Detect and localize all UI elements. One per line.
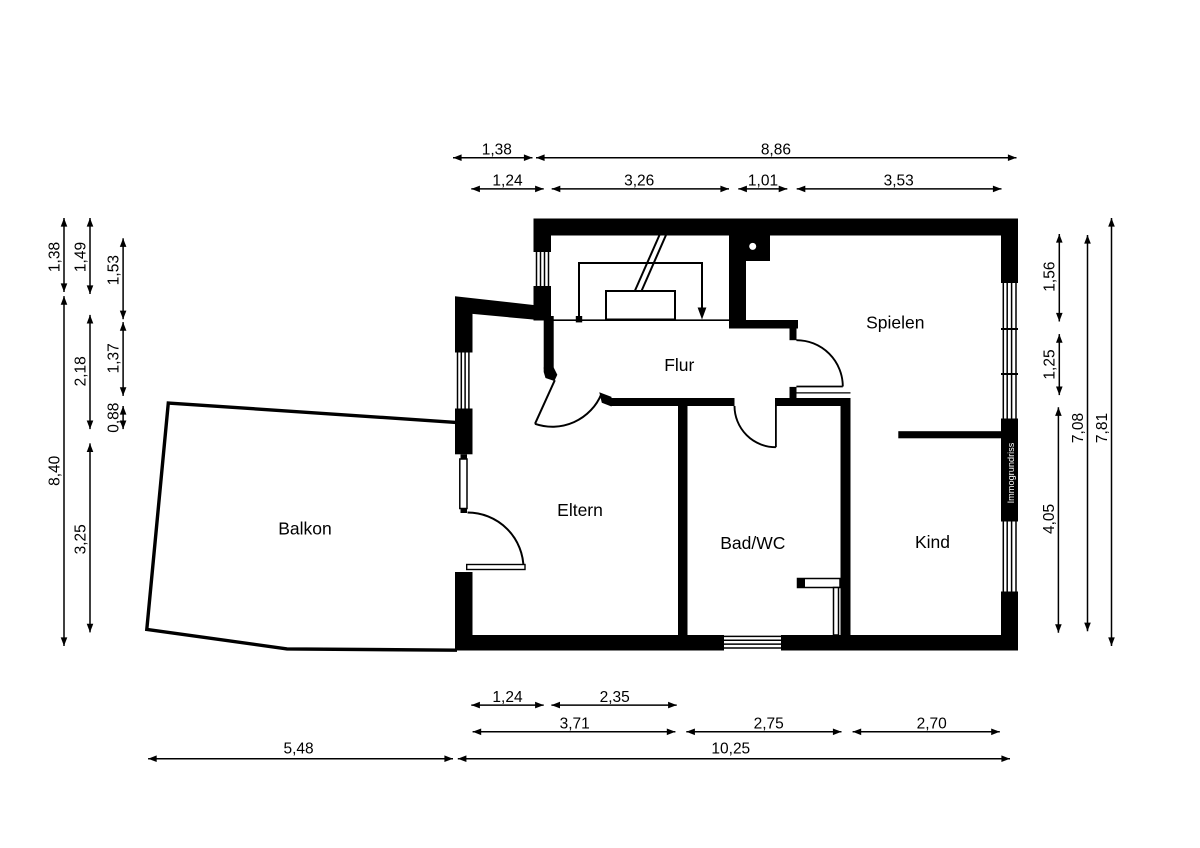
svg-text:1,24: 1,24 (492, 689, 523, 706)
svg-text:1,49: 1,49 (72, 242, 89, 272)
svg-text:8,86: 8,86 (761, 142, 791, 159)
svg-text:4,05: 4,05 (1041, 504, 1058, 534)
svg-text:2,75: 2,75 (754, 716, 784, 733)
svg-text:Flur: Flur (664, 355, 694, 375)
svg-text:1,24: 1,24 (492, 173, 523, 190)
svg-text:Balkon: Balkon (278, 519, 332, 539)
svg-text:2,70: 2,70 (917, 716, 948, 733)
svg-text:1,01: 1,01 (748, 173, 778, 190)
svg-text:3,71: 3,71 (560, 716, 590, 733)
svg-text:7,08: 7,08 (1070, 413, 1087, 443)
svg-text:Eltern: Eltern (557, 500, 603, 520)
svg-text:0,88: 0,88 (106, 403, 123, 433)
svg-text:1,38: 1,38 (482, 142, 512, 159)
svg-text:Immogrundriss: Immogrundriss (1006, 442, 1016, 503)
svg-text:3,53: 3,53 (884, 173, 914, 190)
svg-text:1,37: 1,37 (106, 343, 123, 373)
svg-text:3,26: 3,26 (624, 173, 654, 190)
svg-text:Kind: Kind (915, 532, 950, 552)
svg-text:5,48: 5,48 (284, 741, 314, 758)
svg-text:Spielen: Spielen (866, 312, 924, 332)
svg-text:1,25: 1,25 (1042, 349, 1059, 379)
svg-text:8,40: 8,40 (46, 455, 63, 486)
svg-text:1,53: 1,53 (106, 255, 123, 285)
svg-text:10,25: 10,25 (711, 741, 750, 758)
svg-text:3,25: 3,25 (72, 524, 89, 554)
svg-text:2,18: 2,18 (72, 356, 89, 386)
svg-text:7,81: 7,81 (1094, 413, 1111, 443)
svg-text:1,56: 1,56 (1042, 262, 1059, 292)
svg-text:2,35: 2,35 (600, 689, 630, 706)
svg-text:1,38: 1,38 (46, 242, 63, 272)
svg-text:Bad/WC: Bad/WC (720, 533, 785, 553)
